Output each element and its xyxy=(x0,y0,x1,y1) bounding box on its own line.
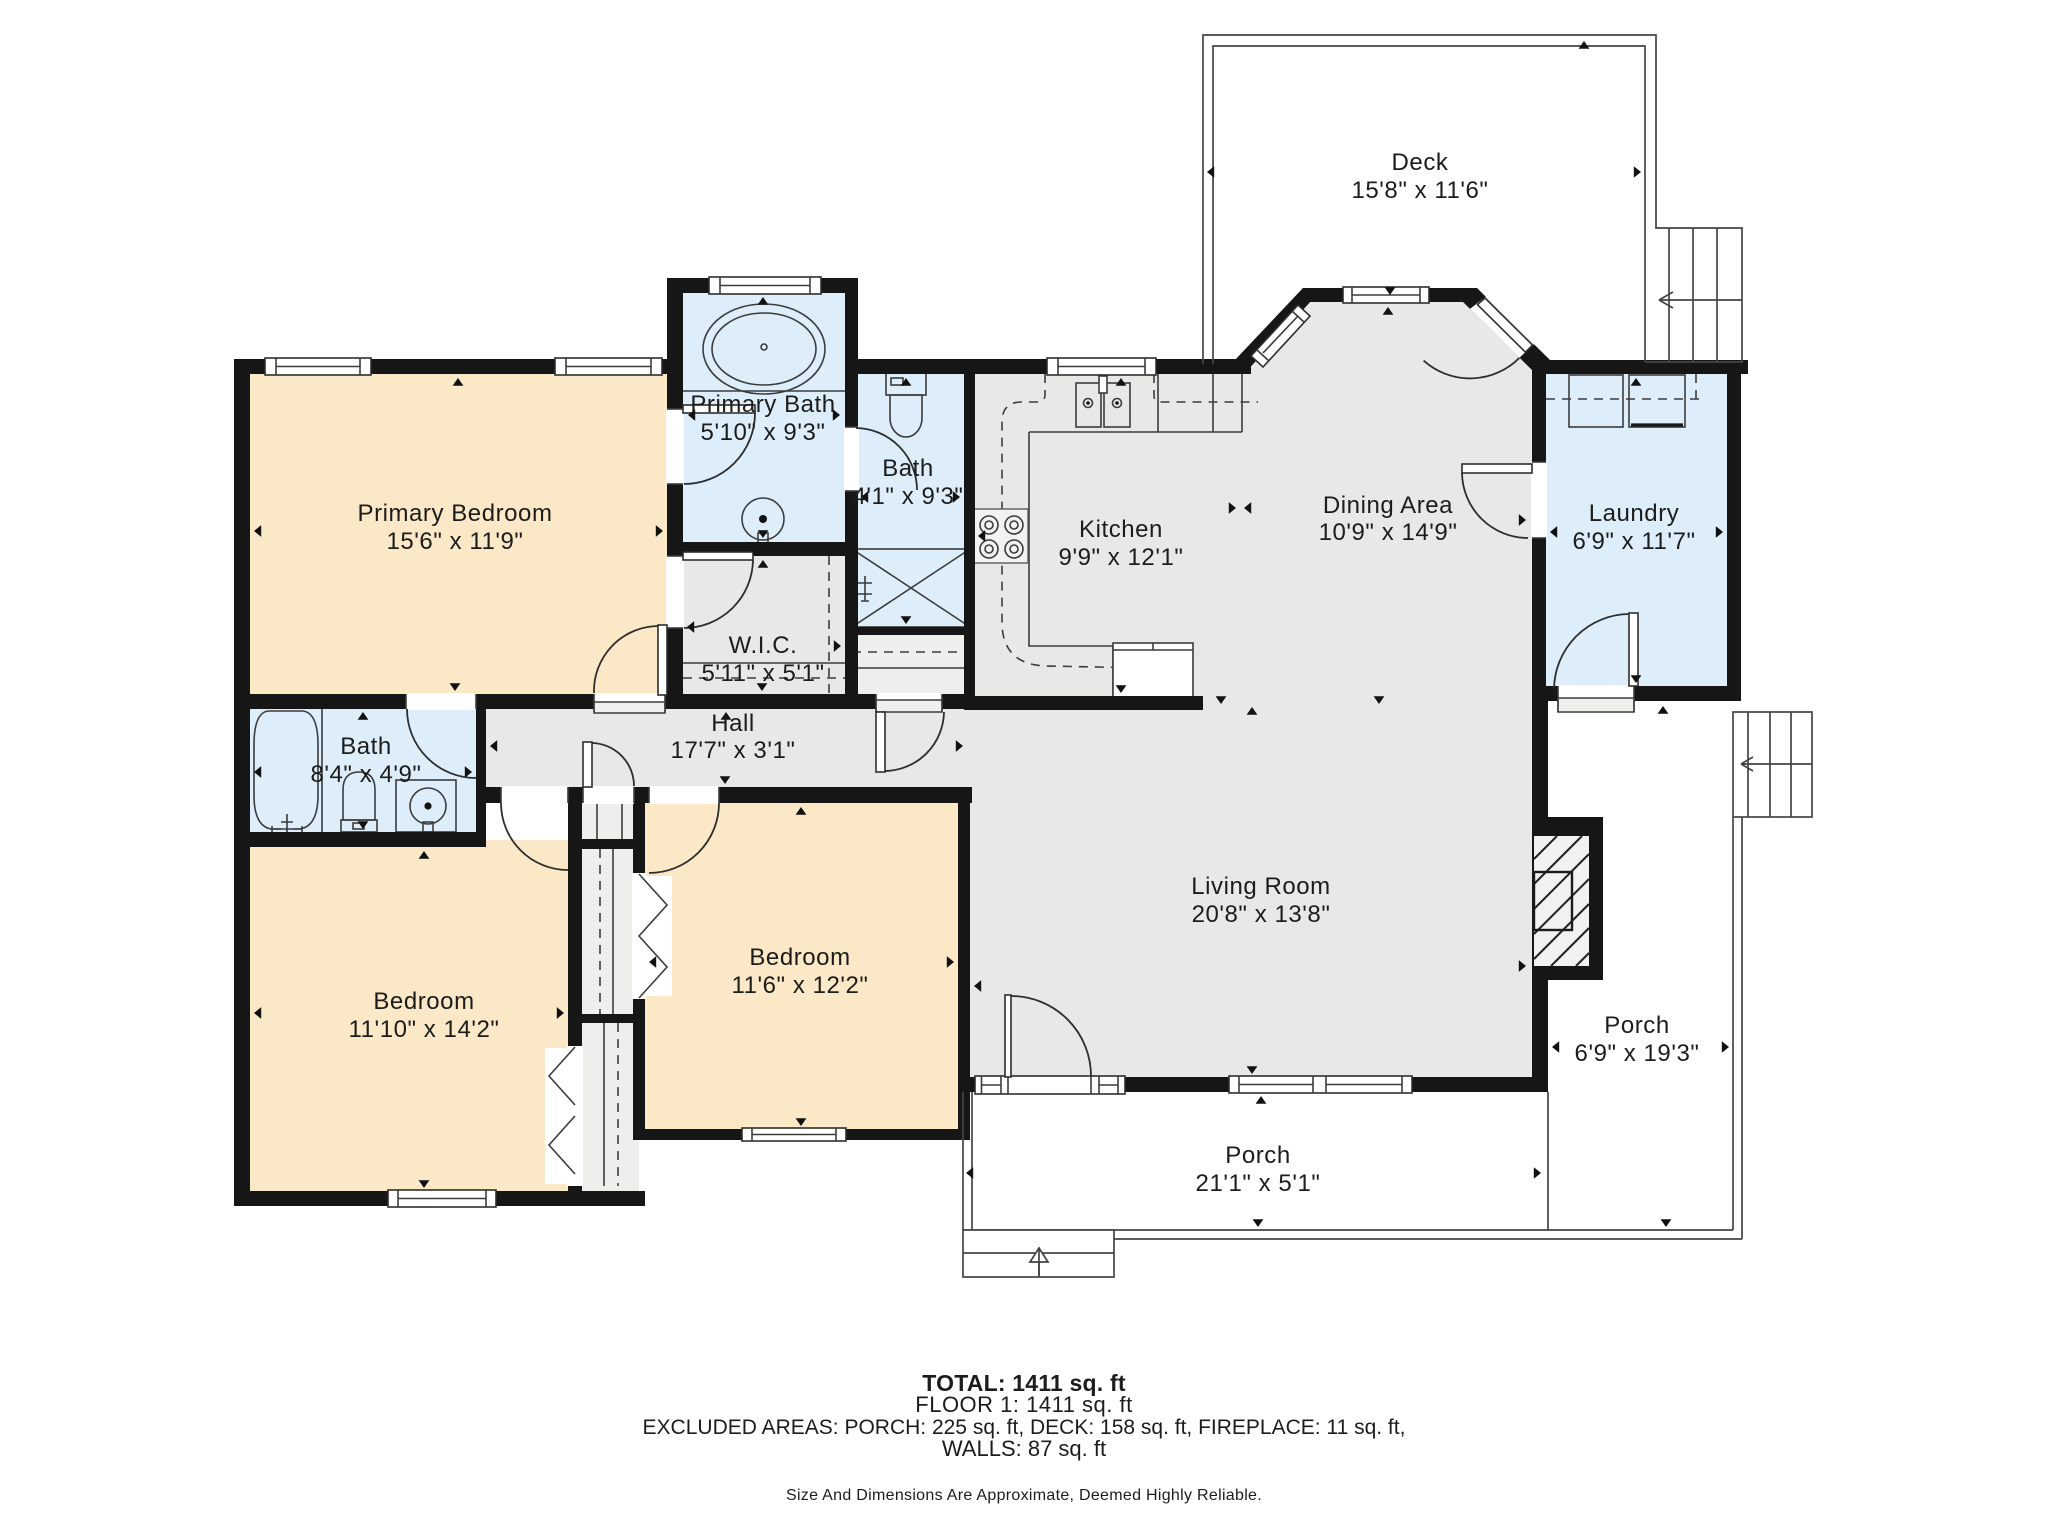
svg-text:15'6" x 11'9": 15'6" x 11'9" xyxy=(387,528,524,555)
svg-text:Porch: Porch xyxy=(1225,1142,1290,1169)
svg-text:17'7" x 3'1": 17'7" x 3'1" xyxy=(671,737,796,764)
svg-text:Porch: Porch xyxy=(1604,1012,1669,1039)
svg-text:Bedroom: Bedroom xyxy=(749,944,850,971)
svg-text:Primary Bedroom: Primary Bedroom xyxy=(358,500,553,527)
svg-text:5'11" x 5'1": 5'11" x 5'1" xyxy=(701,660,824,687)
svg-text:10'9" x 14'9": 10'9" x 14'9" xyxy=(1319,519,1458,546)
svg-text:11'6" x 12'2": 11'6" x 12'2" xyxy=(732,972,869,999)
svg-text:FLOOR 1: 1411 sq. ft: FLOOR 1: 1411 sq. ft xyxy=(915,1392,1132,1417)
svg-text:Living Room: Living Room xyxy=(1191,873,1330,900)
svg-text:Bath: Bath xyxy=(340,733,392,760)
svg-text:W.I.C.: W.I.C. xyxy=(729,632,798,659)
svg-text:15'8" x 11'6": 15'8" x 11'6" xyxy=(1352,177,1489,204)
svg-text:Deck: Deck xyxy=(1392,149,1449,176)
svg-text:5'10" x 9'3": 5'10" x 9'3" xyxy=(701,419,826,446)
svg-text:21'1" x 5'1": 21'1" x 5'1" xyxy=(1196,1170,1321,1197)
svg-text:11'10" x 14'2": 11'10" x 14'2" xyxy=(349,1016,500,1043)
svg-text:9'9" x 12'1": 9'9" x 12'1" xyxy=(1059,544,1184,571)
svg-text:6'9" x 19'3": 6'9" x 19'3" xyxy=(1575,1040,1700,1067)
svg-text:Bedroom: Bedroom xyxy=(373,988,474,1015)
svg-text:Laundry: Laundry xyxy=(1589,500,1680,527)
svg-text:Kitchen: Kitchen xyxy=(1079,516,1163,543)
svg-text:4'1" x 9'3": 4'1" x 9'3" xyxy=(853,483,964,510)
svg-text:Size And Dimensions Are Approx: Size And Dimensions Are Approximate, Dee… xyxy=(786,1487,1262,1504)
svg-text:8'4" x 4'9": 8'4" x 4'9" xyxy=(311,761,422,788)
svg-text:Hall: Hall xyxy=(711,710,755,737)
svg-text:WALLS: 87 sq. ft: WALLS: 87 sq. ft xyxy=(942,1436,1106,1461)
svg-text:Primary Bath: Primary Bath xyxy=(690,391,835,418)
svg-text:Dining Area: Dining Area xyxy=(1323,492,1453,519)
svg-text:20'8" x 13'8": 20'8" x 13'8" xyxy=(1192,901,1331,928)
svg-text:6'9" x 11'7": 6'9" x 11'7" xyxy=(1572,528,1695,555)
svg-text:Bath: Bath xyxy=(882,455,934,482)
